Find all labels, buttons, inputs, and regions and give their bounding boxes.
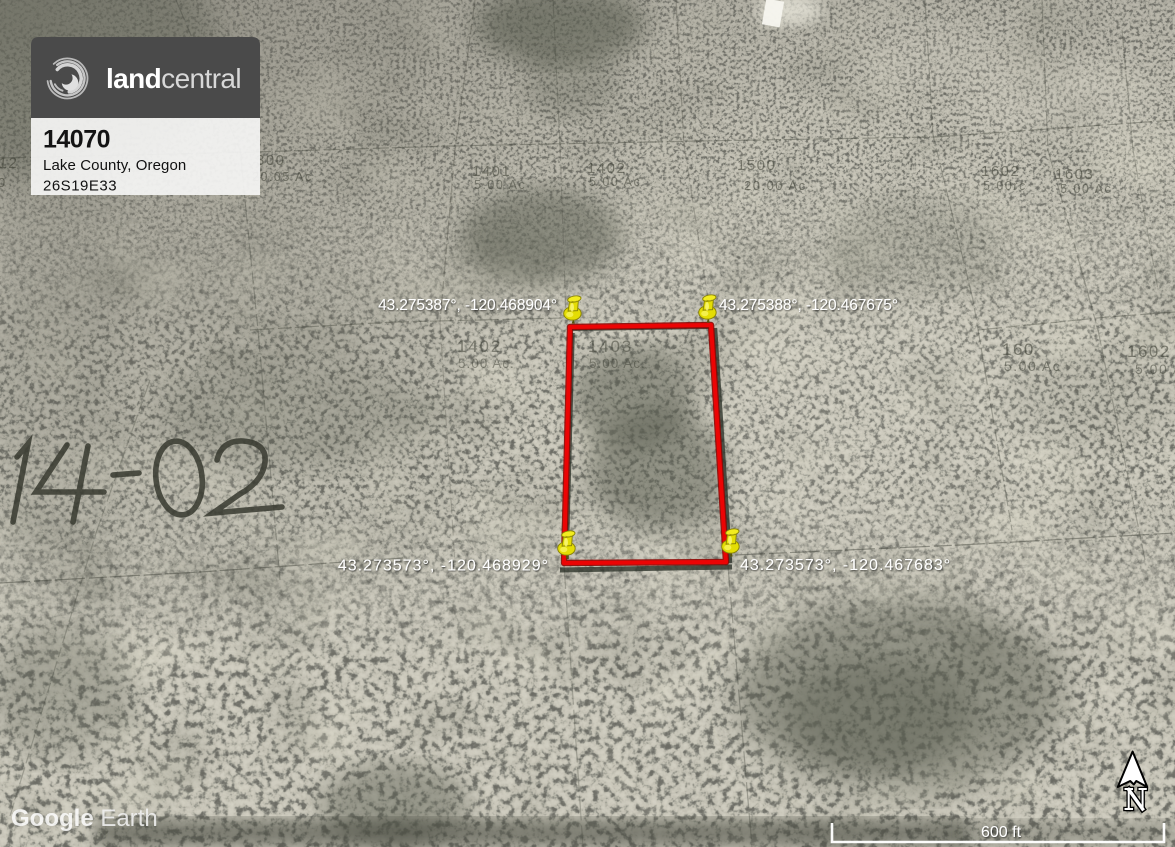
svg-text:20: 20: [0, 175, 7, 190]
svg-text:5.00 Ac.: 5.00 Ac.: [589, 356, 646, 371]
svg-text:160: 160: [1002, 340, 1035, 359]
svg-text:5.00 Ac: 5.00 Ac: [1004, 358, 1061, 374]
svg-text:5.00 Ac: 5.00 Ac: [474, 178, 526, 192]
svg-text:26S19E33: 26S19E33: [43, 178, 117, 195]
svg-text:20.05 Ac: 20.05 Ac: [252, 170, 313, 184]
svg-text:1602: 1602: [1127, 342, 1171, 361]
svg-text:1603: 1603: [1055, 166, 1094, 183]
svg-text:43.273573°, -120.468929°: 43.273573°, -120.468929°: [338, 558, 549, 575]
svg-text:Lake County, Oregon: Lake County, Oregon: [43, 157, 186, 174]
svg-text:14070: 14070: [43, 126, 110, 154]
svg-text:1602: 1602: [981, 163, 1020, 180]
svg-text:5.00 Ac.: 5.00 Ac.: [458, 356, 515, 371]
svg-text:12: 12: [0, 155, 19, 172]
svg-text:20.00 Ac: 20.00 Ac: [744, 178, 807, 193]
svg-text:5.00rc: 5.00rc: [983, 179, 1027, 193]
svg-text:43.273573°, -120.467683°: 43.273573°, -120.467683°: [740, 557, 951, 574]
svg-text:Google Earth: Google Earth: [11, 805, 158, 832]
svg-text:300: 300: [256, 152, 286, 169]
svg-text:5.00 Ac: 5.00 Ac: [589, 175, 641, 189]
svg-text:600 ft: 600 ft: [981, 824, 1022, 841]
svg-text:1403: 1403: [588, 337, 633, 356]
svg-text:1500: 1500: [737, 157, 776, 174]
svg-text:landcentral: landcentral: [106, 63, 241, 94]
svg-text:1402: 1402: [457, 337, 502, 356]
svg-text:43.275387°, -120.468904°: 43.275387°, -120.468904°: [378, 297, 557, 314]
svg-text:5.00 Ac: 5.00 Ac: [1060, 182, 1112, 196]
svg-text:5.00 Ac: 5.00 Ac: [1135, 361, 1175, 377]
svg-text:43.275388°, -120.467675°: 43.275388°, -120.467675°: [719, 297, 898, 314]
